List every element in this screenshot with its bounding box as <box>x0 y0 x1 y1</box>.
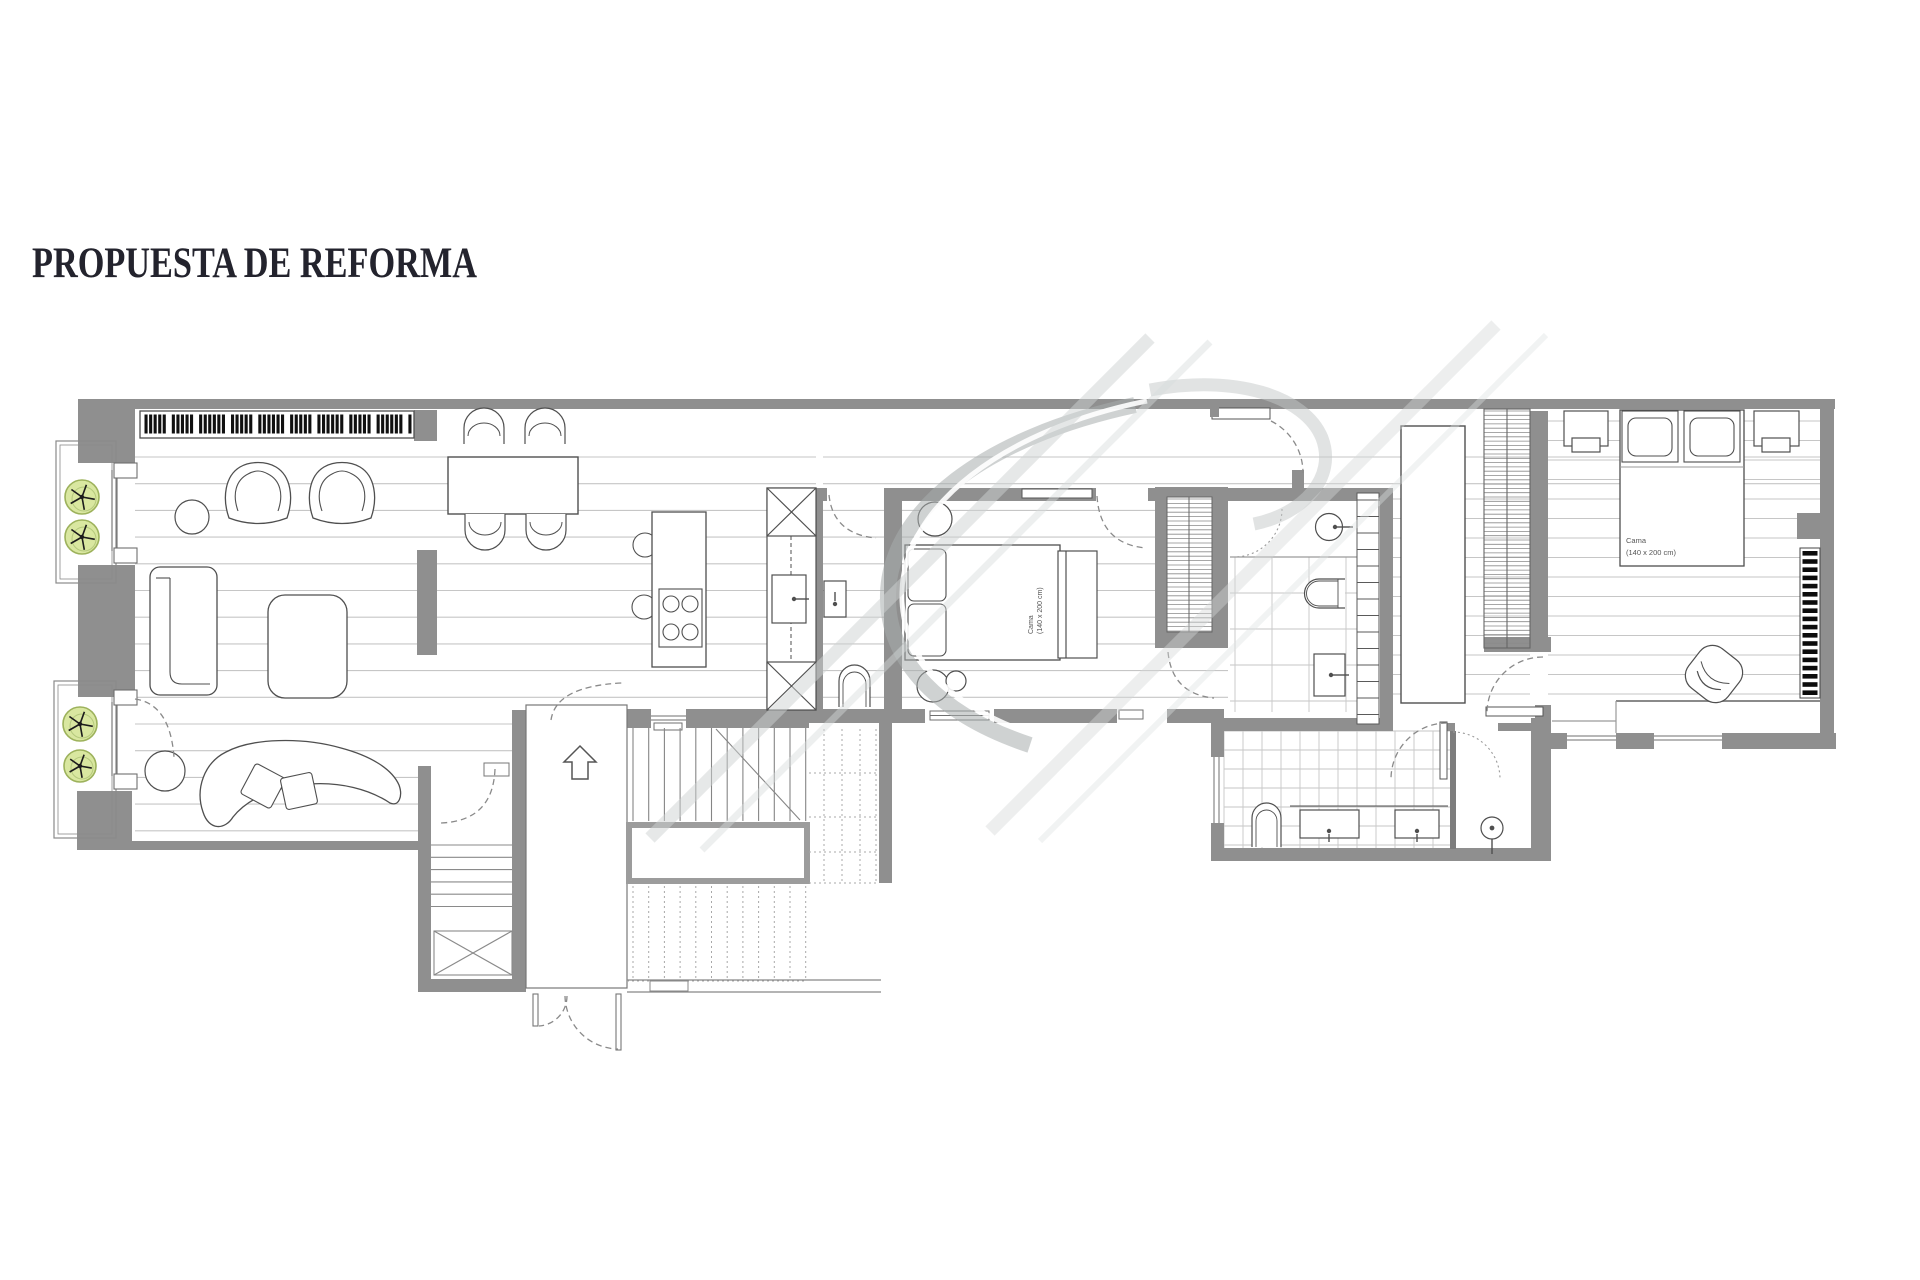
svg-text:(140 x 200 cm): (140 x 200 cm) <box>1037 587 1044 634</box>
svg-text:Cama: Cama <box>1028 615 1035 634</box>
svg-text:Cama: Cama <box>1626 536 1647 545</box>
svg-text:PROPUESTA DE REFORMA: PROPUESTA DE REFORMA <box>32 240 477 287</box>
svg-text:(140 x 200 cm): (140 x 200 cm) <box>1626 548 1677 557</box>
